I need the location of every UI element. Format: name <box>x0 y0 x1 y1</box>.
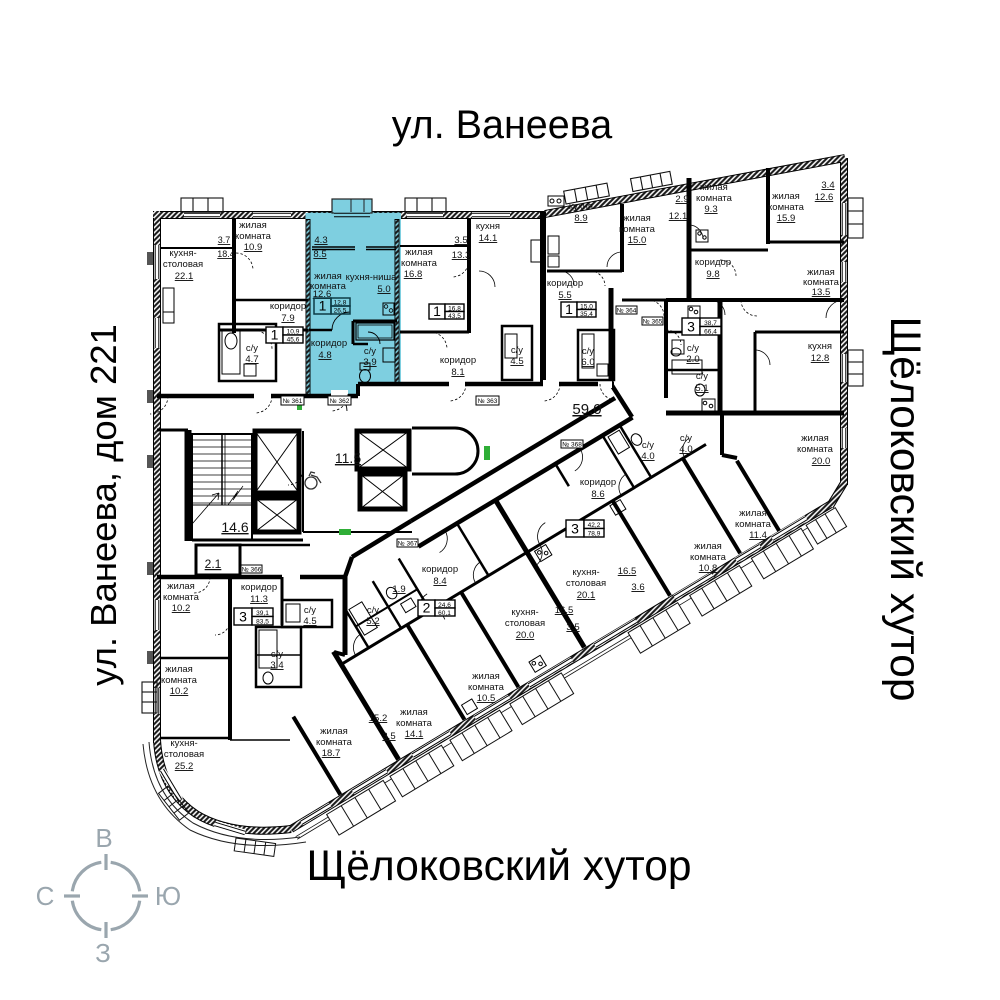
svg-text:10,9: 10,9 <box>287 329 300 336</box>
svg-text:11.5: 11.5 <box>335 450 361 466</box>
svg-text:5.0: 5.0 <box>377 284 390 295</box>
svg-text:5.2: 5.2 <box>366 616 379 627</box>
svg-text:жилая: жилая <box>239 220 267 231</box>
svg-text:8.9: 8.9 <box>574 213 587 224</box>
svg-text:20.1: 20.1 <box>577 590 596 601</box>
svg-text:жилая: жилая <box>623 213 651 224</box>
svg-text:38,7: 38,7 <box>704 320 717 327</box>
svg-text:коридор: коридор <box>695 257 731 268</box>
svg-text:комната: комната <box>468 682 505 693</box>
svg-text:с/у: с/у <box>642 440 654 451</box>
svg-text:с/у: с/у <box>271 649 283 660</box>
svg-text:3.5: 3.5 <box>382 731 395 742</box>
svg-text:10.9: 10.9 <box>244 242 263 253</box>
svg-text:жилая: жилая <box>400 707 428 718</box>
svg-text:коридор: коридор <box>311 338 347 349</box>
svg-text:2.0: 2.0 <box>686 354 699 365</box>
svg-text:3.5: 3.5 <box>454 235 467 246</box>
svg-text:45,6: 45,6 <box>287 337 300 344</box>
svg-text:с/у: с/у <box>680 433 692 444</box>
svg-text:83,5: 83,5 <box>256 619 269 626</box>
svg-text:4.0: 4.0 <box>679 444 692 455</box>
svg-text:15.0: 15.0 <box>628 235 647 246</box>
svg-text:жилая: жилая <box>167 581 195 592</box>
svg-text:№ 362: № 362 <box>330 398 350 405</box>
svg-text:комната: комната <box>163 592 200 603</box>
svg-text:столовая: столовая <box>566 578 606 589</box>
svg-text:комната: комната <box>401 258 438 269</box>
svg-text:с/у: с/у <box>364 346 376 357</box>
svg-text:В: В <box>95 823 112 853</box>
svg-text:коридор: коридор <box>547 278 583 289</box>
svg-text:12.8: 12.8 <box>811 353 830 364</box>
svg-text:№ 365: № 365 <box>643 319 663 326</box>
svg-text:комната: комната <box>396 718 433 729</box>
svg-text:6.0: 6.0 <box>581 357 594 368</box>
svg-text:с/у: с/у <box>304 605 316 616</box>
svg-text:столовая: столовая <box>505 618 545 629</box>
svg-text:коридор: коридор <box>241 582 277 593</box>
svg-text:18.7: 18.7 <box>322 748 341 759</box>
svg-text:комната: комната <box>619 224 656 235</box>
svg-text:4.3: 4.3 <box>314 235 327 246</box>
svg-text:2.1: 2.1 <box>205 557 222 571</box>
svg-text:26,5: 26,5 <box>334 308 347 315</box>
svg-text:№ 368: № 368 <box>562 442 582 449</box>
svg-text:3.6: 3.6 <box>631 582 644 593</box>
svg-text:15,0: 15,0 <box>580 304 593 311</box>
svg-text:16.5: 16.5 <box>555 605 574 616</box>
svg-text:жилая: жилая <box>165 664 193 675</box>
svg-text:24,6: 24,6 <box>438 602 451 609</box>
svg-text:кухня: кухня <box>569 201 593 212</box>
svg-text:4.5: 4.5 <box>510 356 523 367</box>
svg-text:14.1: 14.1 <box>479 233 498 244</box>
svg-text:43,5: 43,5 <box>448 313 461 320</box>
svg-text:14.1: 14.1 <box>405 729 424 740</box>
svg-text:7.9: 7.9 <box>281 313 294 324</box>
svg-text:12.6: 12.6 <box>815 192 834 203</box>
svg-text:коридор: коридор <box>270 301 306 312</box>
svg-text:5.1: 5.1 <box>695 383 708 394</box>
svg-text:с/у: с/у <box>511 345 523 356</box>
svg-text:20.0: 20.0 <box>516 630 535 641</box>
svg-text:16,8: 16,8 <box>448 306 461 313</box>
svg-text:22.1: 22.1 <box>175 271 194 282</box>
svg-text:ул. Ванеева: ул. Ванеева <box>392 103 612 147</box>
svg-text:комната: комната <box>797 444 834 455</box>
svg-text:кухня-: кухня- <box>169 248 196 259</box>
svg-text:№ 364: № 364 <box>617 308 637 315</box>
svg-text:с/у: с/у <box>696 371 708 382</box>
svg-text:10.2: 10.2 <box>170 686 189 697</box>
svg-text:кухня-: кухня- <box>511 607 538 618</box>
svg-text:жилая: жилая <box>801 433 829 444</box>
svg-text:коридор: коридор <box>580 477 616 488</box>
svg-text:жилая: жилая <box>772 191 800 202</box>
svg-text:12.1: 12.1 <box>669 211 688 222</box>
svg-text:кухня-ниша: кухня-ниша <box>346 272 397 283</box>
svg-text:10.8: 10.8 <box>699 563 718 574</box>
svg-text:жилая: жилая <box>739 508 767 519</box>
svg-text:11.3: 11.3 <box>250 594 268 605</box>
svg-text:с/у: с/у <box>246 343 258 354</box>
svg-text:комната: комната <box>690 552 727 563</box>
svg-text:1: 1 <box>271 327 279 343</box>
svg-text:11.4: 11.4 <box>749 530 767 541</box>
svg-text:З: З <box>95 938 111 968</box>
svg-text:10.5: 10.5 <box>477 693 496 704</box>
svg-text:2: 2 <box>423 600 431 616</box>
svg-text:18.4: 18.4 <box>217 249 235 259</box>
svg-text:жилая: жилая <box>472 671 500 682</box>
svg-text:1: 1 <box>319 298 327 314</box>
svg-text:жилая: жилая <box>405 247 433 258</box>
svg-text:жилая: жилая <box>694 541 722 552</box>
svg-text:комната: комната <box>768 202 805 213</box>
svg-text:60,1: 60,1 <box>438 610 451 617</box>
svg-text:8.1: 8.1 <box>451 367 464 378</box>
svg-text:Щёлоковский хутор: Щёлоковский хутор <box>881 316 928 701</box>
svg-text:комната: комната <box>735 519 772 530</box>
svg-text:жилая: жилая <box>700 182 728 193</box>
svg-text:комната: комната <box>696 193 733 204</box>
svg-text:3.4: 3.4 <box>270 660 283 671</box>
svg-text:с/у: с/у <box>687 343 699 354</box>
svg-text:комната: комната <box>161 675 198 686</box>
svg-text:8.4: 8.4 <box>433 576 446 587</box>
svg-text:25.2: 25.2 <box>175 761 194 772</box>
svg-text:9.3: 9.3 <box>704 204 717 215</box>
svg-text:комната: комната <box>235 231 272 242</box>
svg-text:12,8: 12,8 <box>334 300 347 307</box>
svg-text:кухня: кухня <box>808 341 832 352</box>
svg-text:кухня: кухня <box>476 221 500 232</box>
svg-text:Ю: Ю <box>155 881 181 911</box>
svg-text:8.6: 8.6 <box>591 489 604 500</box>
svg-text:3: 3 <box>239 609 247 625</box>
svg-text:3: 3 <box>687 319 695 335</box>
svg-text:№ 366: № 366 <box>242 567 262 574</box>
svg-text:15.2: 15.2 <box>369 713 388 724</box>
svg-text:№ 361: № 361 <box>283 398 303 405</box>
svg-text:коридор: коридор <box>422 564 458 575</box>
svg-text:4.5: 4.5 <box>303 616 316 627</box>
svg-text:20.0: 20.0 <box>812 456 831 467</box>
svg-text:№ 363: № 363 <box>478 398 498 405</box>
svg-text:кухня-: кухня- <box>170 738 197 749</box>
svg-text:16.8: 16.8 <box>404 269 423 280</box>
svg-text:13.5: 13.5 <box>812 287 831 298</box>
svg-text:4.7: 4.7 <box>245 354 258 365</box>
svg-text:1: 1 <box>433 303 441 319</box>
svg-text:8.5: 8.5 <box>313 249 326 260</box>
svg-text:1: 1 <box>565 301 573 317</box>
svg-text:с/у: с/у <box>367 605 379 616</box>
svg-text:С: С <box>36 881 55 911</box>
svg-text:66,4: 66,4 <box>704 329 717 336</box>
svg-text:Щёлоковский хутор: Щёлоковский хутор <box>306 843 691 890</box>
svg-text:15.9: 15.9 <box>777 213 796 224</box>
svg-text:42,2: 42,2 <box>588 522 601 529</box>
svg-text:10.2: 10.2 <box>172 603 191 614</box>
svg-text:5.5: 5.5 <box>558 290 571 301</box>
svg-text:комната: комната <box>316 737 353 748</box>
svg-text:16.5: 16.5 <box>618 566 637 577</box>
svg-text:14.6: 14.6 <box>221 519 248 535</box>
svg-text:3.5: 3.5 <box>566 622 579 633</box>
svg-text:3: 3 <box>571 521 579 537</box>
svg-text:39,1: 39,1 <box>256 610 269 617</box>
svg-text:4.0: 4.0 <box>641 451 654 462</box>
svg-text:коридор: коридор <box>440 355 476 366</box>
svg-text:столовая: столовая <box>164 749 204 760</box>
svg-text:№ 367: № 367 <box>398 541 418 548</box>
svg-text:59.0: 59.0 <box>572 401 601 418</box>
svg-text:жилая: жилая <box>320 726 348 737</box>
svg-text:ул. Ванеева, дом 221: ул. Ванеева, дом 221 <box>83 324 124 686</box>
svg-text:2.9: 2.9 <box>675 194 688 205</box>
svg-text:4.8: 4.8 <box>318 350 331 361</box>
svg-text:9.8: 9.8 <box>706 269 719 280</box>
svg-text:3.4: 3.4 <box>821 180 834 191</box>
svg-text:35,4: 35,4 <box>580 311 593 318</box>
svg-text:столовая: столовая <box>163 259 203 270</box>
svg-text:кухня-: кухня- <box>572 567 599 578</box>
svg-text:78,9: 78,9 <box>588 531 601 538</box>
svg-text:3.7: 3.7 <box>218 235 231 245</box>
svg-text:13.3: 13.3 <box>452 250 471 261</box>
svg-text:с/у: с/у <box>582 346 594 357</box>
svg-text:3.9: 3.9 <box>363 357 376 368</box>
svg-text:1.9: 1.9 <box>392 584 405 595</box>
